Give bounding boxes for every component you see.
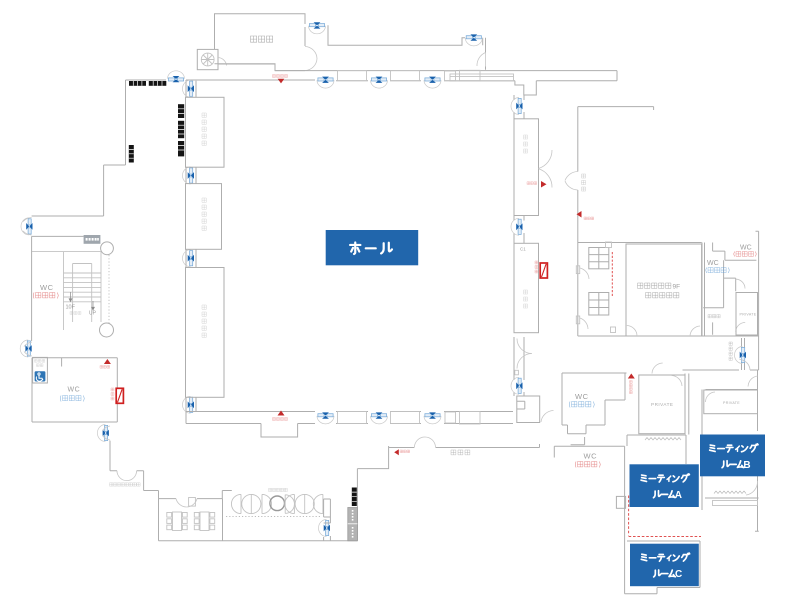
svg-text:9F: 9F [673,284,681,291]
svg-text:PRIVATE: PRIVATE [723,401,740,405]
svg-text:WC: WC [40,283,54,292]
svg-text:C: C [675,569,682,580]
svg-text:WC: WC [575,392,589,401]
svg-text:B: B [743,460,750,471]
svg-text:C1: C1 [520,247,526,252]
svg-text:A: A [675,490,682,501]
svg-text:PRIVATE: PRIVATE [651,402,673,407]
svg-text:WC: WC [707,260,719,267]
svg-text:UP: UP [89,311,97,317]
svg-text:10F: 10F [66,305,76,311]
svg-text:PRIVATE: PRIVATE [740,313,757,317]
svg-text:WC: WC [740,245,752,252]
svg-text:WC: WC [584,452,598,461]
svg-text:WC: WC [68,387,81,394]
